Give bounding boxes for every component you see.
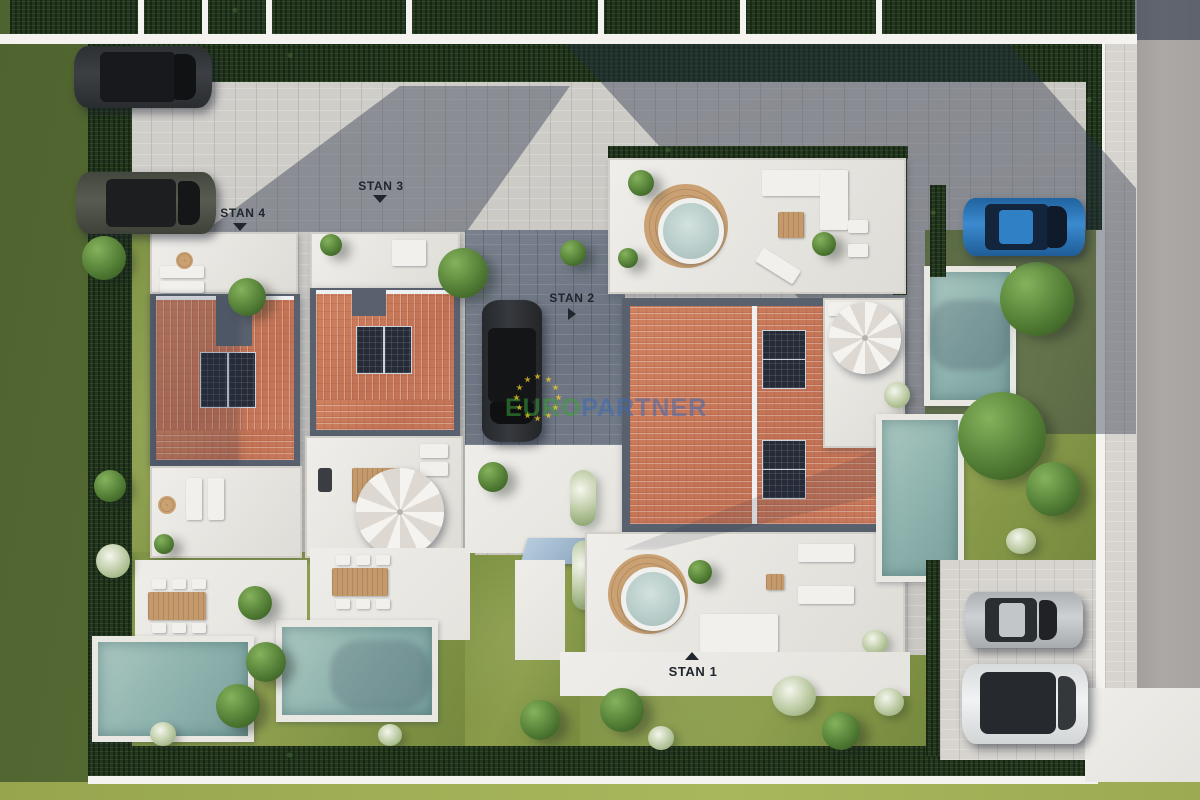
tree xyxy=(228,278,266,316)
pool-2 xyxy=(282,627,432,715)
tree xyxy=(1026,462,1080,516)
fence-top xyxy=(0,34,1137,44)
jacuzzi xyxy=(621,567,685,631)
deck-chair xyxy=(798,544,854,562)
flower-bush xyxy=(772,676,816,716)
fence-post xyxy=(202,0,208,34)
tree xyxy=(520,700,560,740)
chair xyxy=(192,623,206,633)
coffee-table xyxy=(778,212,804,238)
stan2-arrow-icon xyxy=(568,308,576,320)
car-windshield xyxy=(178,181,200,225)
side-table xyxy=(158,496,176,514)
fence-post xyxy=(598,0,604,34)
car-dark-suv xyxy=(74,46,212,108)
sidewalk xyxy=(1105,0,1137,782)
unit-b-roof-apron xyxy=(316,400,454,430)
flower-bush xyxy=(378,724,402,746)
lounge-bed xyxy=(392,240,426,266)
solar-panel xyxy=(762,359,806,389)
outdoor-sofa xyxy=(700,614,778,652)
flower-bush xyxy=(874,688,904,716)
fence-post xyxy=(876,0,882,34)
parasol xyxy=(356,468,444,556)
car-roof xyxy=(999,210,1033,244)
dining-table xyxy=(148,592,206,620)
car-blue xyxy=(963,198,1085,256)
site-plan-render: STAN 4 STAN 3 STAN 2 STAN 1 EUROPARTNER xyxy=(0,0,1200,800)
chair xyxy=(172,623,186,633)
bbq-grill xyxy=(318,468,332,492)
car-glass xyxy=(488,328,536,402)
flower-box xyxy=(884,382,910,408)
tree xyxy=(560,240,586,266)
tree xyxy=(238,586,272,620)
side-table xyxy=(766,574,784,590)
car-panoramic-roof xyxy=(980,672,1056,734)
terrace-plant xyxy=(320,234,342,256)
outdoor-sofa xyxy=(820,170,848,230)
car-white xyxy=(962,664,1088,744)
tree xyxy=(82,236,126,280)
jacuzzi xyxy=(658,198,724,264)
hedge-right-top xyxy=(1086,44,1102,230)
car-windshield xyxy=(1047,206,1067,248)
tree xyxy=(246,642,286,682)
sun-lounger xyxy=(186,478,202,520)
car-windshield xyxy=(1058,676,1076,730)
chair xyxy=(376,599,390,609)
chair xyxy=(192,579,206,589)
chair xyxy=(356,555,370,565)
solar-panel xyxy=(762,469,806,499)
deck-chair xyxy=(848,220,868,233)
pool-4 xyxy=(882,420,958,576)
label-stan-1: STAN 1 xyxy=(655,664,731,679)
watermark-partner: PARTNER xyxy=(581,394,707,422)
unit-b-roof-notch xyxy=(352,288,386,316)
unit-a-roof-apron xyxy=(156,430,294,460)
car-windshield xyxy=(174,54,196,100)
fence-post xyxy=(138,0,144,34)
dining-table xyxy=(332,568,388,596)
label-stan-4: STAN 4 xyxy=(205,206,281,220)
tree xyxy=(1000,262,1074,336)
terrace-plant xyxy=(618,248,638,268)
flower-bed xyxy=(1006,528,1036,554)
car-silver xyxy=(965,592,1083,648)
flower-bush xyxy=(648,726,674,750)
solar-panel xyxy=(356,326,384,374)
stan3-arrow-icon xyxy=(373,195,387,203)
fence-post xyxy=(740,0,746,34)
chair xyxy=(172,579,186,589)
flower-bed xyxy=(570,470,596,526)
fence-post xyxy=(406,0,412,34)
stan4-arrow-icon xyxy=(233,223,247,231)
sun-lounger xyxy=(160,281,204,293)
deck-chair xyxy=(420,444,448,458)
tree xyxy=(822,712,860,750)
terrace-plant xyxy=(154,534,174,554)
car-roof xyxy=(999,603,1025,637)
flower-bush xyxy=(150,722,176,746)
flower-bed xyxy=(862,630,888,654)
deck-chair xyxy=(420,462,448,476)
center-path xyxy=(515,560,565,660)
sun-lounger xyxy=(208,478,224,520)
hedge-blue-car xyxy=(930,185,946,277)
deck-chair xyxy=(798,586,854,604)
car-olive-suv xyxy=(76,172,216,234)
terrace-plant xyxy=(812,232,836,256)
hedge-top-outer xyxy=(10,0,1135,34)
car-glass xyxy=(100,52,176,102)
car-windshield xyxy=(1039,600,1057,640)
chair xyxy=(356,599,370,609)
fence-post xyxy=(266,0,272,34)
label-stan-2: STAN 2 xyxy=(534,291,610,305)
fence-bottom xyxy=(88,776,1098,784)
hedge-top-inner xyxy=(88,44,1098,82)
road xyxy=(1137,0,1200,782)
terrace-table xyxy=(176,252,193,269)
solar-panel xyxy=(762,330,806,360)
chair xyxy=(152,579,166,589)
hedge-parking xyxy=(926,560,940,756)
terrace-plant xyxy=(628,170,654,196)
parasol xyxy=(829,302,901,374)
chair xyxy=(376,555,390,565)
pool-3 xyxy=(930,272,1010,400)
tree xyxy=(600,688,644,732)
chair xyxy=(336,555,350,565)
flower-bush xyxy=(96,544,130,578)
solar-panel xyxy=(228,352,256,408)
terrace-plant xyxy=(688,560,712,584)
roof-gutter xyxy=(752,306,757,524)
solar-panel xyxy=(762,440,806,470)
solar-panel xyxy=(384,326,412,374)
tree xyxy=(216,684,260,728)
car-glass xyxy=(106,179,176,227)
tree xyxy=(438,248,488,298)
tree xyxy=(958,392,1046,480)
chair xyxy=(336,599,350,609)
tree xyxy=(478,462,508,492)
label-stan-3: STAN 3 xyxy=(343,179,419,193)
stan1-arrow-icon xyxy=(685,652,699,660)
solar-panel xyxy=(200,352,228,408)
watermark: EUROPARTNER xyxy=(505,394,707,423)
driveway-exit xyxy=(1085,688,1200,782)
tree xyxy=(94,470,126,502)
chair xyxy=(152,623,166,633)
deck-chair xyxy=(848,244,868,257)
outer-lawn-bottom xyxy=(0,782,1200,800)
